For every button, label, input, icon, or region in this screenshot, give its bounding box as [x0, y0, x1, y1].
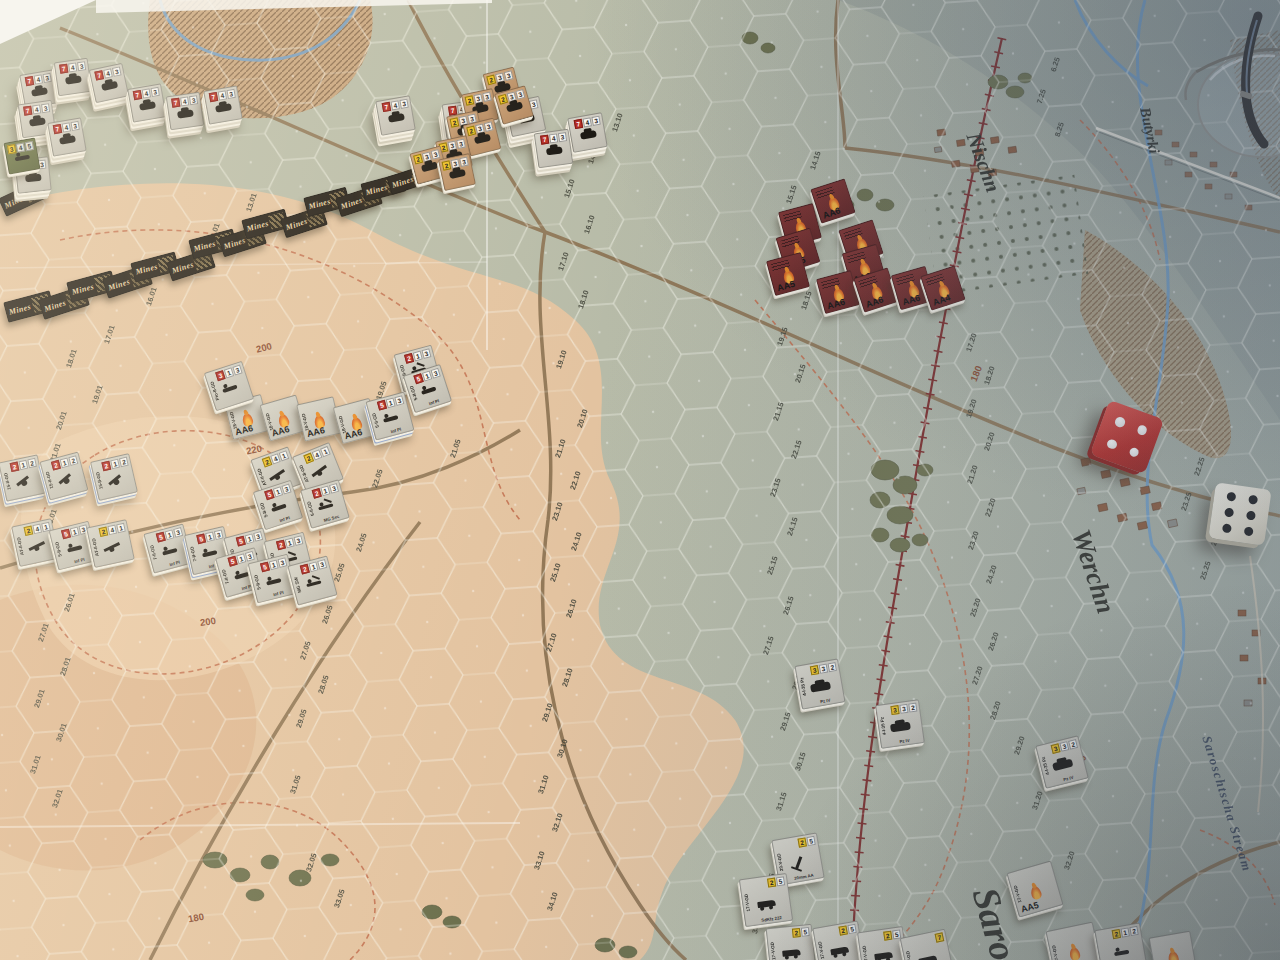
eyeglasses[interactable]	[0, 0, 1280, 960]
wargame-table-photo: 13.0114.0115.0116.0117.0118.0119.0120.01…	[0, 0, 1280, 960]
